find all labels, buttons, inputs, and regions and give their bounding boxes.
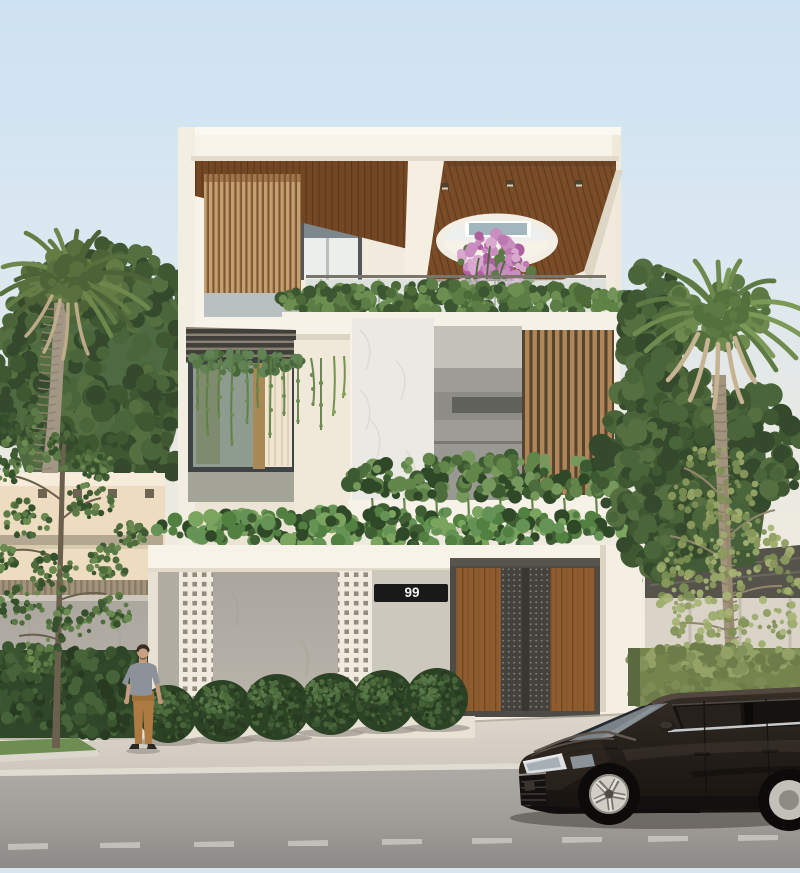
svg-text:99: 99 [404,585,419,600]
